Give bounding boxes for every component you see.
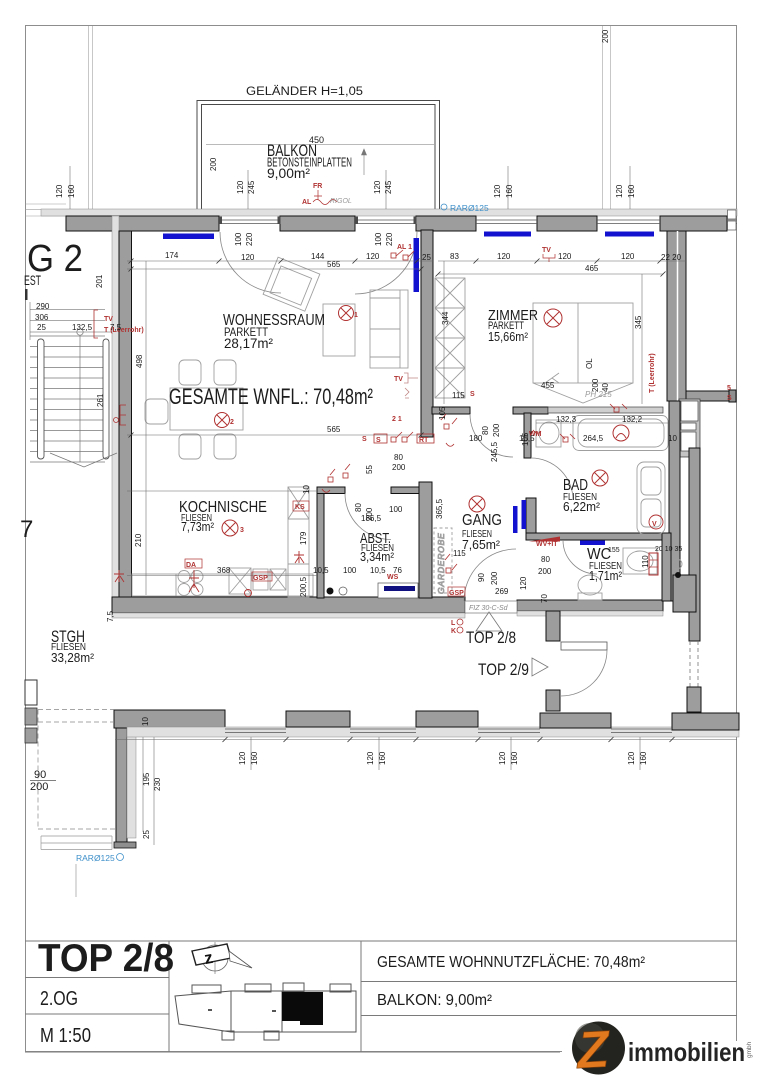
svg-text:10,5: 10,5 (313, 566, 329, 575)
svg-text:120: 120 (241, 253, 255, 262)
svg-text:TOP 2/8: TOP 2/8 (466, 629, 516, 647)
svg-text:245: 245 (247, 180, 256, 194)
svg-text:FR: FR (313, 183, 322, 190)
svg-text:5: 5 (727, 385, 731, 392)
svg-text:245,5: 245,5 (490, 441, 499, 462)
svg-text:V: V (652, 521, 657, 528)
svg-text:1: 1 (354, 312, 358, 319)
svg-text:565: 565 (327, 260, 341, 269)
svg-text:200: 200 (392, 463, 406, 472)
svg-text:RT: RT (419, 437, 429, 444)
svg-text:345: 345 (634, 315, 643, 329)
svg-text:120: 120 (55, 184, 64, 198)
svg-text:L: L (451, 620, 456, 627)
svg-text:120: 120 (238, 751, 247, 765)
svg-text:230: 230 (153, 777, 162, 791)
svg-text:261: 261 (96, 393, 105, 407)
svg-text:7,73m²: 7,73m² (181, 520, 214, 534)
svg-text:22 20: 22 20 (661, 253, 682, 262)
svg-text:2.OG: 2.OG (40, 988, 78, 1010)
svg-text:28,17m²: 28,17m² (224, 335, 273, 351)
svg-text:RIGOL: RIGOL (330, 198, 352, 205)
svg-text:160: 160 (505, 184, 514, 198)
svg-text:90: 90 (477, 573, 486, 582)
svg-text:WV+IT: WV+IT (536, 541, 558, 548)
svg-text:120: 120 (493, 184, 502, 198)
svg-text:3,34m²: 3,34m² (360, 550, 394, 564)
svg-text:155: 155 (608, 547, 620, 554)
svg-text:200: 200 (209, 157, 218, 171)
svg-text:120: 120 (498, 751, 507, 765)
svg-text:KS: KS (295, 504, 305, 511)
svg-text:EST: EST (24, 273, 41, 288)
svg-text:AL: AL (302, 199, 312, 206)
svg-text:7,5: 7,5 (106, 610, 115, 622)
svg-text:BALKON: 9,00m²: BALKON: 9,00m² (377, 992, 492, 1009)
svg-text:160: 160 (510, 751, 519, 765)
svg-text:20 10 35: 20 10 35 (655, 546, 682, 553)
svg-text:120: 120 (627, 751, 636, 765)
svg-text:264,5: 264,5 (583, 434, 604, 443)
svg-text:174: 174 (165, 251, 179, 260)
svg-text:GESAMTE WOHNNUTZFLÄCHE: 70,48m: GESAMTE WOHNNUTZFLÄCHE: 70,48m² (377, 954, 645, 971)
svg-text:160: 160 (627, 184, 636, 198)
svg-text:S: S (362, 436, 367, 443)
svg-text:25: 25 (142, 830, 151, 839)
svg-text:25: 25 (422, 253, 431, 262)
svg-text:M 1:50: M 1:50 (40, 1025, 91, 1047)
svg-text:368: 368 (217, 566, 231, 575)
svg-text:6,22m²: 6,22m² (563, 500, 600, 514)
svg-text:200: 200 (492, 423, 501, 437)
svg-text:120: 120 (497, 252, 511, 261)
svg-text:10,5: 10,5 (370, 566, 386, 575)
svg-text:S: S (727, 395, 732, 402)
svg-text:344: 344 (441, 311, 450, 325)
svg-text:269: 269 (495, 587, 509, 596)
svg-text:120: 120 (615, 184, 624, 198)
svg-text:K: K (451, 628, 456, 635)
svg-text:FIZ 30-C-Sd: FIZ 30-C-Sd (469, 605, 509, 612)
svg-text:105: 105 (521, 432, 530, 446)
svg-text:100: 100 (389, 505, 403, 514)
svg-text:120: 120 (236, 180, 245, 194)
svg-text:S: S (470, 391, 475, 398)
svg-text:25: 25 (37, 323, 46, 332)
svg-text:GARDEROBE: GARDEROBE (436, 532, 446, 594)
svg-text:80: 80 (394, 453, 403, 462)
svg-text:S: S (376, 437, 381, 444)
svg-text:7,65m²: 7,65m² (462, 538, 500, 552)
svg-text:TV: TV (542, 247, 551, 254)
svg-text:gmbh: gmbh (746, 1041, 753, 1058)
svg-text:7: 7 (20, 516, 33, 543)
svg-text:immobilien: immobilien (628, 1037, 745, 1067)
svg-text:90: 90 (34, 769, 46, 781)
svg-text:80: 80 (541, 555, 550, 564)
svg-text:180: 180 (469, 434, 483, 443)
svg-text:OL: OL (585, 358, 594, 369)
svg-text:TOP 2/8: TOP 2/8 (38, 937, 174, 980)
svg-text:120: 120 (366, 751, 375, 765)
svg-text:100: 100 (234, 232, 243, 246)
svg-text:GELÄNDER H=1,05: GELÄNDER H=1,05 (246, 86, 363, 98)
svg-text:186,5: 186,5 (361, 514, 382, 523)
svg-text:105: 105 (438, 406, 447, 420)
svg-text:9,00m²: 9,00m² (267, 165, 310, 181)
svg-text:76: 76 (393, 566, 402, 575)
svg-text:200: 200 (490, 571, 499, 585)
svg-text:160: 160 (250, 751, 259, 765)
svg-text:179: 179 (299, 531, 308, 545)
svg-text:70: 70 (540, 594, 549, 603)
svg-text:290: 290 (36, 302, 50, 311)
svg-text:498: 498 (135, 354, 144, 368)
svg-text:220: 220 (385, 232, 394, 246)
svg-text:7,5: 7,5 (110, 323, 122, 332)
svg-text:GESAMTE WNFL.: 70,48m²: GESAMTE WNFL.: 70,48m² (169, 384, 373, 409)
svg-text:110: 110 (641, 555, 650, 568)
svg-text:T (Leerrohr): T (Leerrohr) (649, 353, 656, 393)
svg-text:Z: Z (574, 1020, 613, 1080)
svg-text:115: 115 (452, 391, 465, 400)
svg-text:AL 1: AL 1 (397, 244, 412, 251)
svg-text:10: 10 (668, 434, 677, 443)
svg-text:TOP 2/9: TOP 2/9 (478, 661, 529, 679)
svg-text:2: 2 (230, 419, 234, 426)
svg-text:306: 306 (35, 313, 49, 322)
svg-text:1,71m²: 1,71m² (589, 569, 622, 583)
svg-text:245: 245 (384, 180, 393, 194)
svg-text:PH 215: PH 215 (585, 390, 612, 399)
svg-text:120: 120 (558, 252, 572, 261)
svg-text:2 1: 2 1 (392, 416, 402, 423)
svg-text:10: 10 (302, 485, 311, 494)
svg-text:200,5: 200,5 (299, 576, 308, 597)
svg-text:200: 200 (601, 29, 610, 43)
svg-text:160: 160 (639, 751, 648, 765)
svg-text:195: 195 (142, 772, 151, 786)
svg-text:RARØ125: RARØ125 (450, 203, 489, 213)
svg-text:160: 160 (378, 751, 387, 765)
svg-text:565: 565 (327, 425, 341, 434)
svg-text:WS: WS (387, 574, 399, 581)
svg-text:132,2: 132,2 (622, 415, 643, 424)
svg-text:465: 465 (585, 264, 599, 273)
svg-text:TV: TV (104, 316, 113, 323)
svg-text:115: 115 (453, 549, 466, 558)
svg-text:100: 100 (374, 232, 383, 246)
svg-text:220: 220 (245, 232, 254, 246)
svg-text:210: 210 (134, 533, 143, 547)
svg-text:10: 10 (141, 717, 150, 726)
svg-text:120: 120 (519, 576, 528, 590)
svg-text:200: 200 (538, 567, 552, 576)
svg-text:365,5: 365,5 (435, 498, 444, 519)
svg-text:160: 160 (67, 184, 76, 198)
svg-text:80: 80 (354, 503, 363, 512)
svg-text:120: 120 (373, 180, 382, 194)
svg-text:120: 120 (621, 252, 635, 261)
svg-text:200: 200 (30, 781, 48, 793)
svg-text:55: 55 (365, 465, 374, 474)
svg-text:TV: TV (394, 376, 403, 383)
svg-text:120: 120 (366, 252, 380, 261)
svg-text:132,5: 132,5 (72, 323, 93, 332)
svg-text:RARØ125: RARØ125 (76, 853, 115, 863)
svg-text:100: 100 (343, 566, 357, 575)
svg-text:3: 3 (240, 527, 244, 534)
svg-text:455: 455 (541, 381, 555, 390)
svg-text:132,3: 132,3 (556, 415, 577, 424)
svg-text:144: 144 (311, 252, 325, 261)
svg-text:201: 201 (95, 274, 104, 288)
svg-text:15,66m²: 15,66m² (488, 329, 529, 344)
svg-text:83: 83 (450, 252, 459, 261)
svg-text:33,28m²: 33,28m² (51, 650, 95, 665)
svg-text:GANG: GANG (462, 512, 502, 529)
